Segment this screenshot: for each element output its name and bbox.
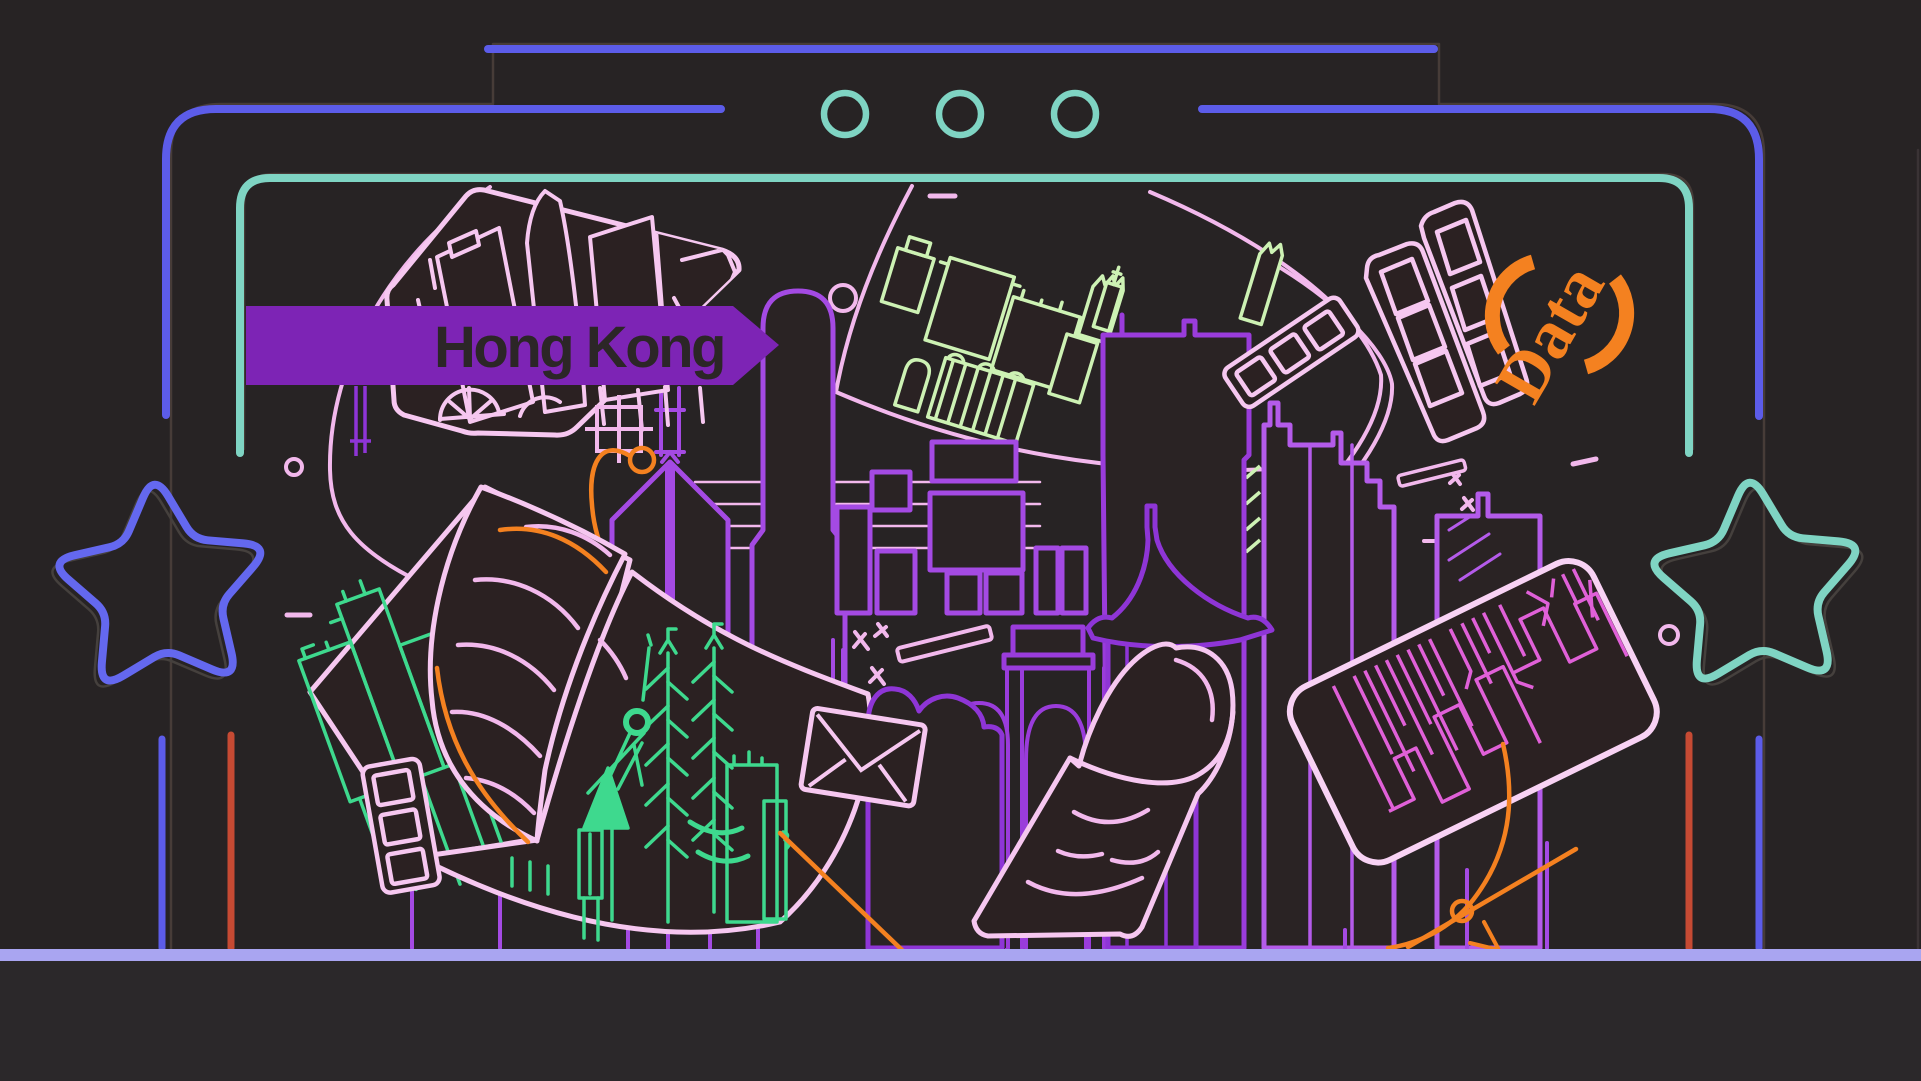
svg-text:Hong Kong: Hong Kong	[434, 315, 724, 380]
